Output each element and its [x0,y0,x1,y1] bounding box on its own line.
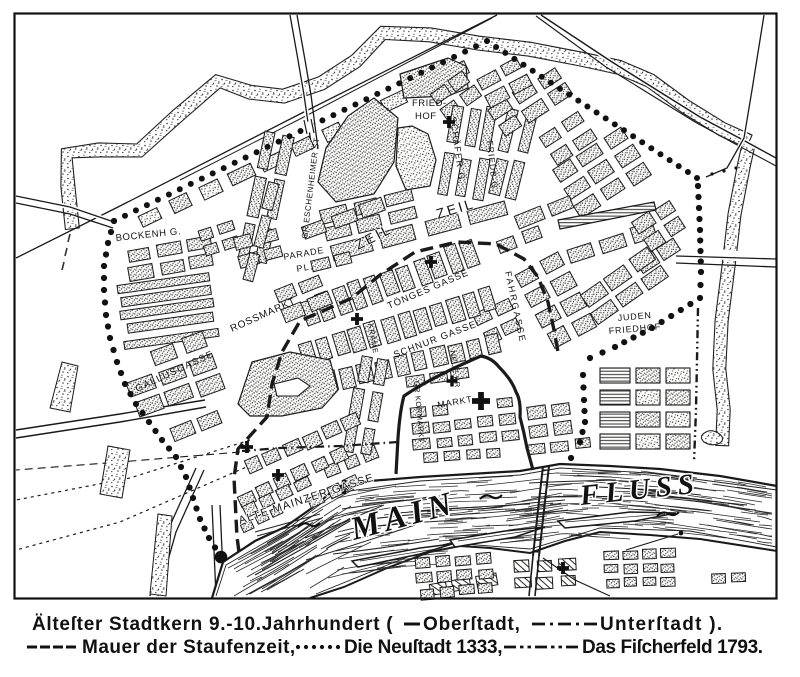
svg-text:Das Fiſcherfeld 1793.: Das Fiſcherfeld 1793. [582,637,763,658]
svg-text:Mauer der Staufenzeit,: Mauer der Staufenzeit, [82,637,296,658]
svg-text:FRIED-: FRIED- [412,98,447,109]
svg-text:Älteſter Stadtkern 9.-10.Jahrh: Älteſter Stadtkern 9.-10.Jahrhundert ( [32,614,393,635]
svg-text:Unterſtadt ).: Unterſtadt ). [600,614,724,635]
svg-text:Oberſtadt,: Oberſtadt, [423,614,521,635]
svg-text:Die Neuſtadt 1333,: Die Neuſtadt 1333, [344,637,502,658]
svg-text:HOF: HOF [415,111,437,122]
